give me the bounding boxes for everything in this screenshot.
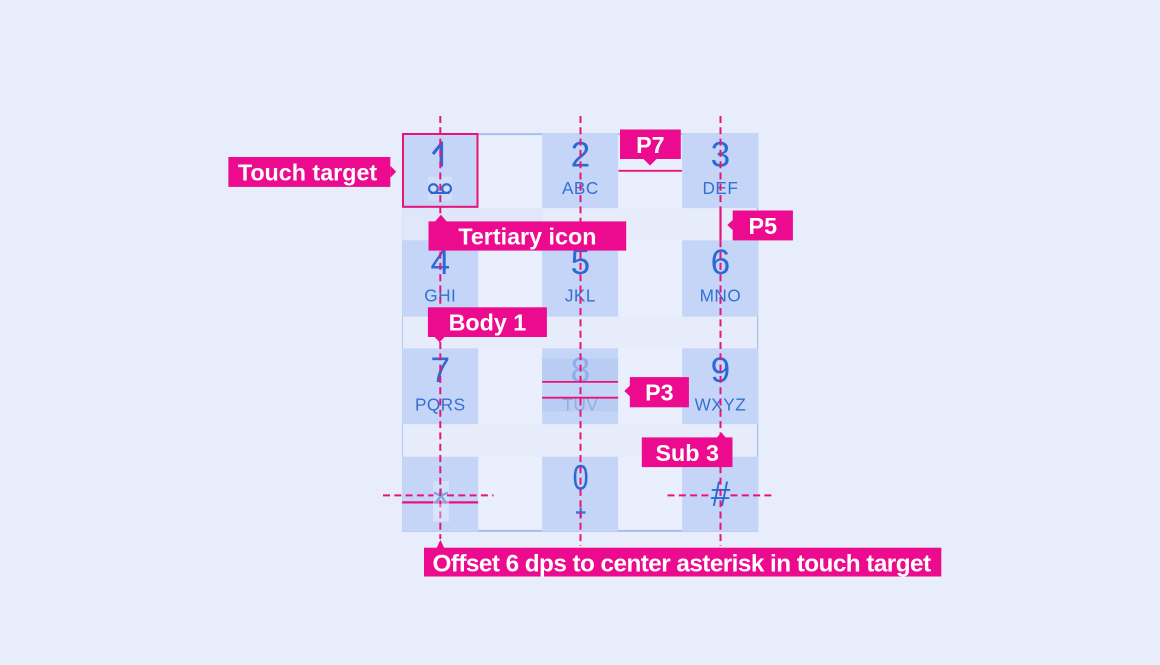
svg-text:Body 1: Body 1 bbox=[449, 310, 527, 336]
svg-text:P5: P5 bbox=[749, 213, 778, 239]
svg-text:P3: P3 bbox=[645, 380, 674, 406]
svg-text:Tertiary icon: Tertiary icon bbox=[458, 224, 596, 250]
svg-text:Offset 6 dps to center asteris: Offset 6 dps to center asterisk in touch… bbox=[432, 550, 930, 577]
svg-text:Sub 3: Sub 3 bbox=[655, 440, 718, 466]
svg-text:Touch target: Touch target bbox=[238, 160, 378, 186]
svg-text:P7: P7 bbox=[636, 132, 665, 158]
